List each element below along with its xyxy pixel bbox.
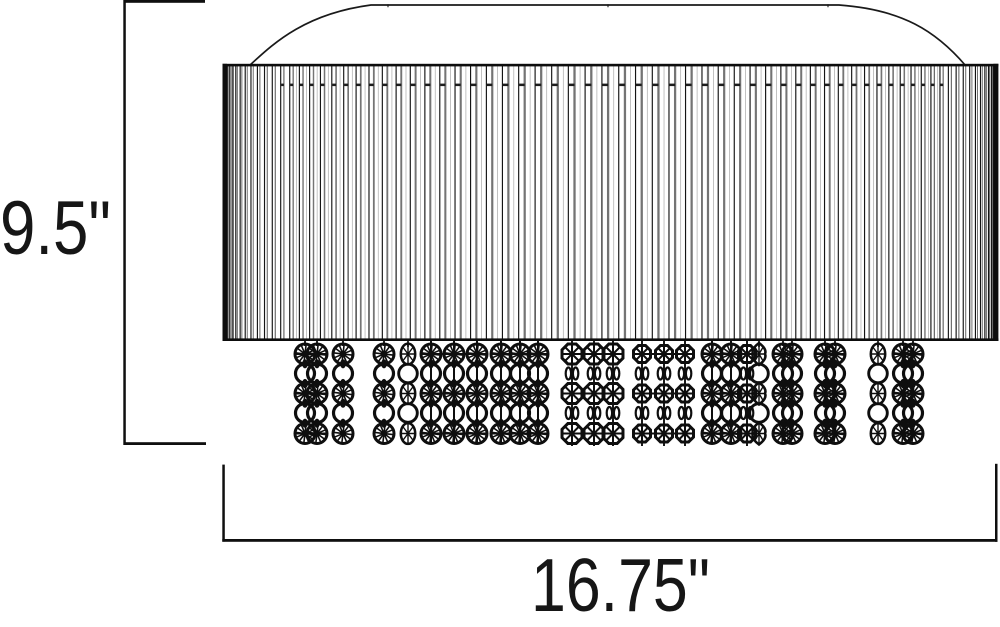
svg-text:16.75": 16.75" [531, 543, 710, 627]
svg-text:9.5": 9.5" [0, 186, 111, 271]
